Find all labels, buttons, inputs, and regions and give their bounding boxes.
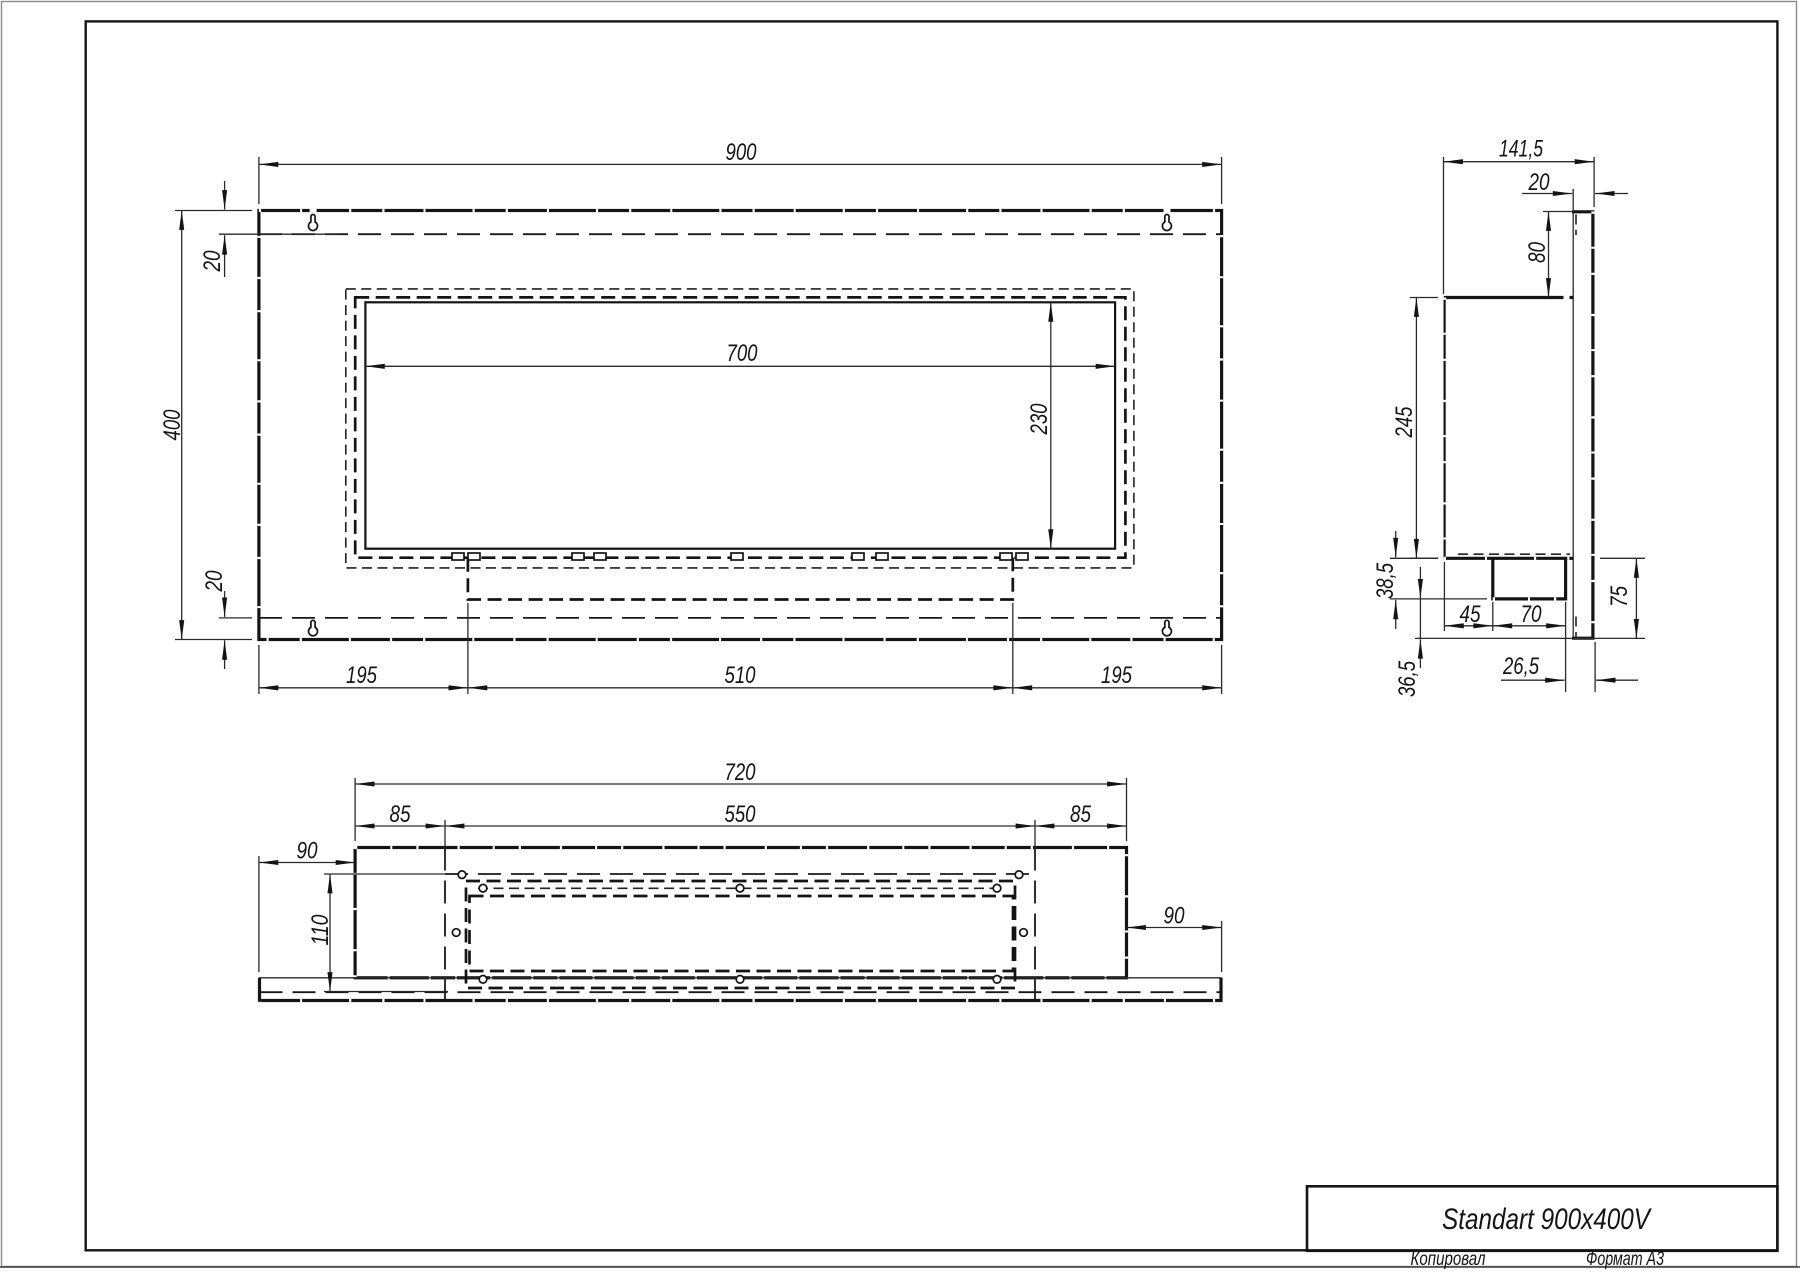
svg-text:20: 20 bbox=[1528, 169, 1550, 196]
svg-text:90: 90 bbox=[1164, 903, 1186, 930]
svg-text:900: 900 bbox=[726, 139, 758, 166]
svg-text:700: 700 bbox=[727, 340, 759, 367]
svg-text:510: 510 bbox=[725, 662, 757, 689]
svg-text:230: 230 bbox=[1026, 403, 1053, 435]
svg-text:80: 80 bbox=[1524, 241, 1551, 263]
svg-text:45: 45 bbox=[1460, 601, 1482, 628]
svg-text:720: 720 bbox=[725, 759, 757, 786]
svg-text:550: 550 bbox=[725, 801, 757, 828]
svg-text:75: 75 bbox=[1606, 585, 1633, 607]
svg-text:195: 195 bbox=[346, 662, 378, 689]
svg-text:141,5: 141,5 bbox=[1499, 136, 1543, 163]
svg-text:85: 85 bbox=[390, 801, 412, 828]
svg-text:26,5: 26,5 bbox=[1502, 653, 1539, 680]
svg-text:245: 245 bbox=[1391, 406, 1418, 438]
svg-text:36,5: 36,5 bbox=[1394, 661, 1421, 697]
svg-text:Standart 900x400V: Standart 900x400V bbox=[1442, 1203, 1652, 1236]
svg-text:195: 195 bbox=[1101, 662, 1133, 689]
svg-text:38,5: 38,5 bbox=[1372, 563, 1399, 599]
svg-text:Копировал: Копировал bbox=[1411, 1249, 1486, 1270]
svg-text:Формат А3: Формат А3 bbox=[1586, 1249, 1664, 1270]
svg-text:20: 20 bbox=[201, 570, 228, 592]
svg-text:90: 90 bbox=[297, 838, 319, 865]
svg-text:400: 400 bbox=[159, 409, 186, 441]
svg-text:85: 85 bbox=[1070, 801, 1092, 828]
svg-text:110: 110 bbox=[307, 914, 334, 946]
svg-text:70: 70 bbox=[1521, 601, 1543, 628]
svg-text:20: 20 bbox=[199, 250, 226, 272]
